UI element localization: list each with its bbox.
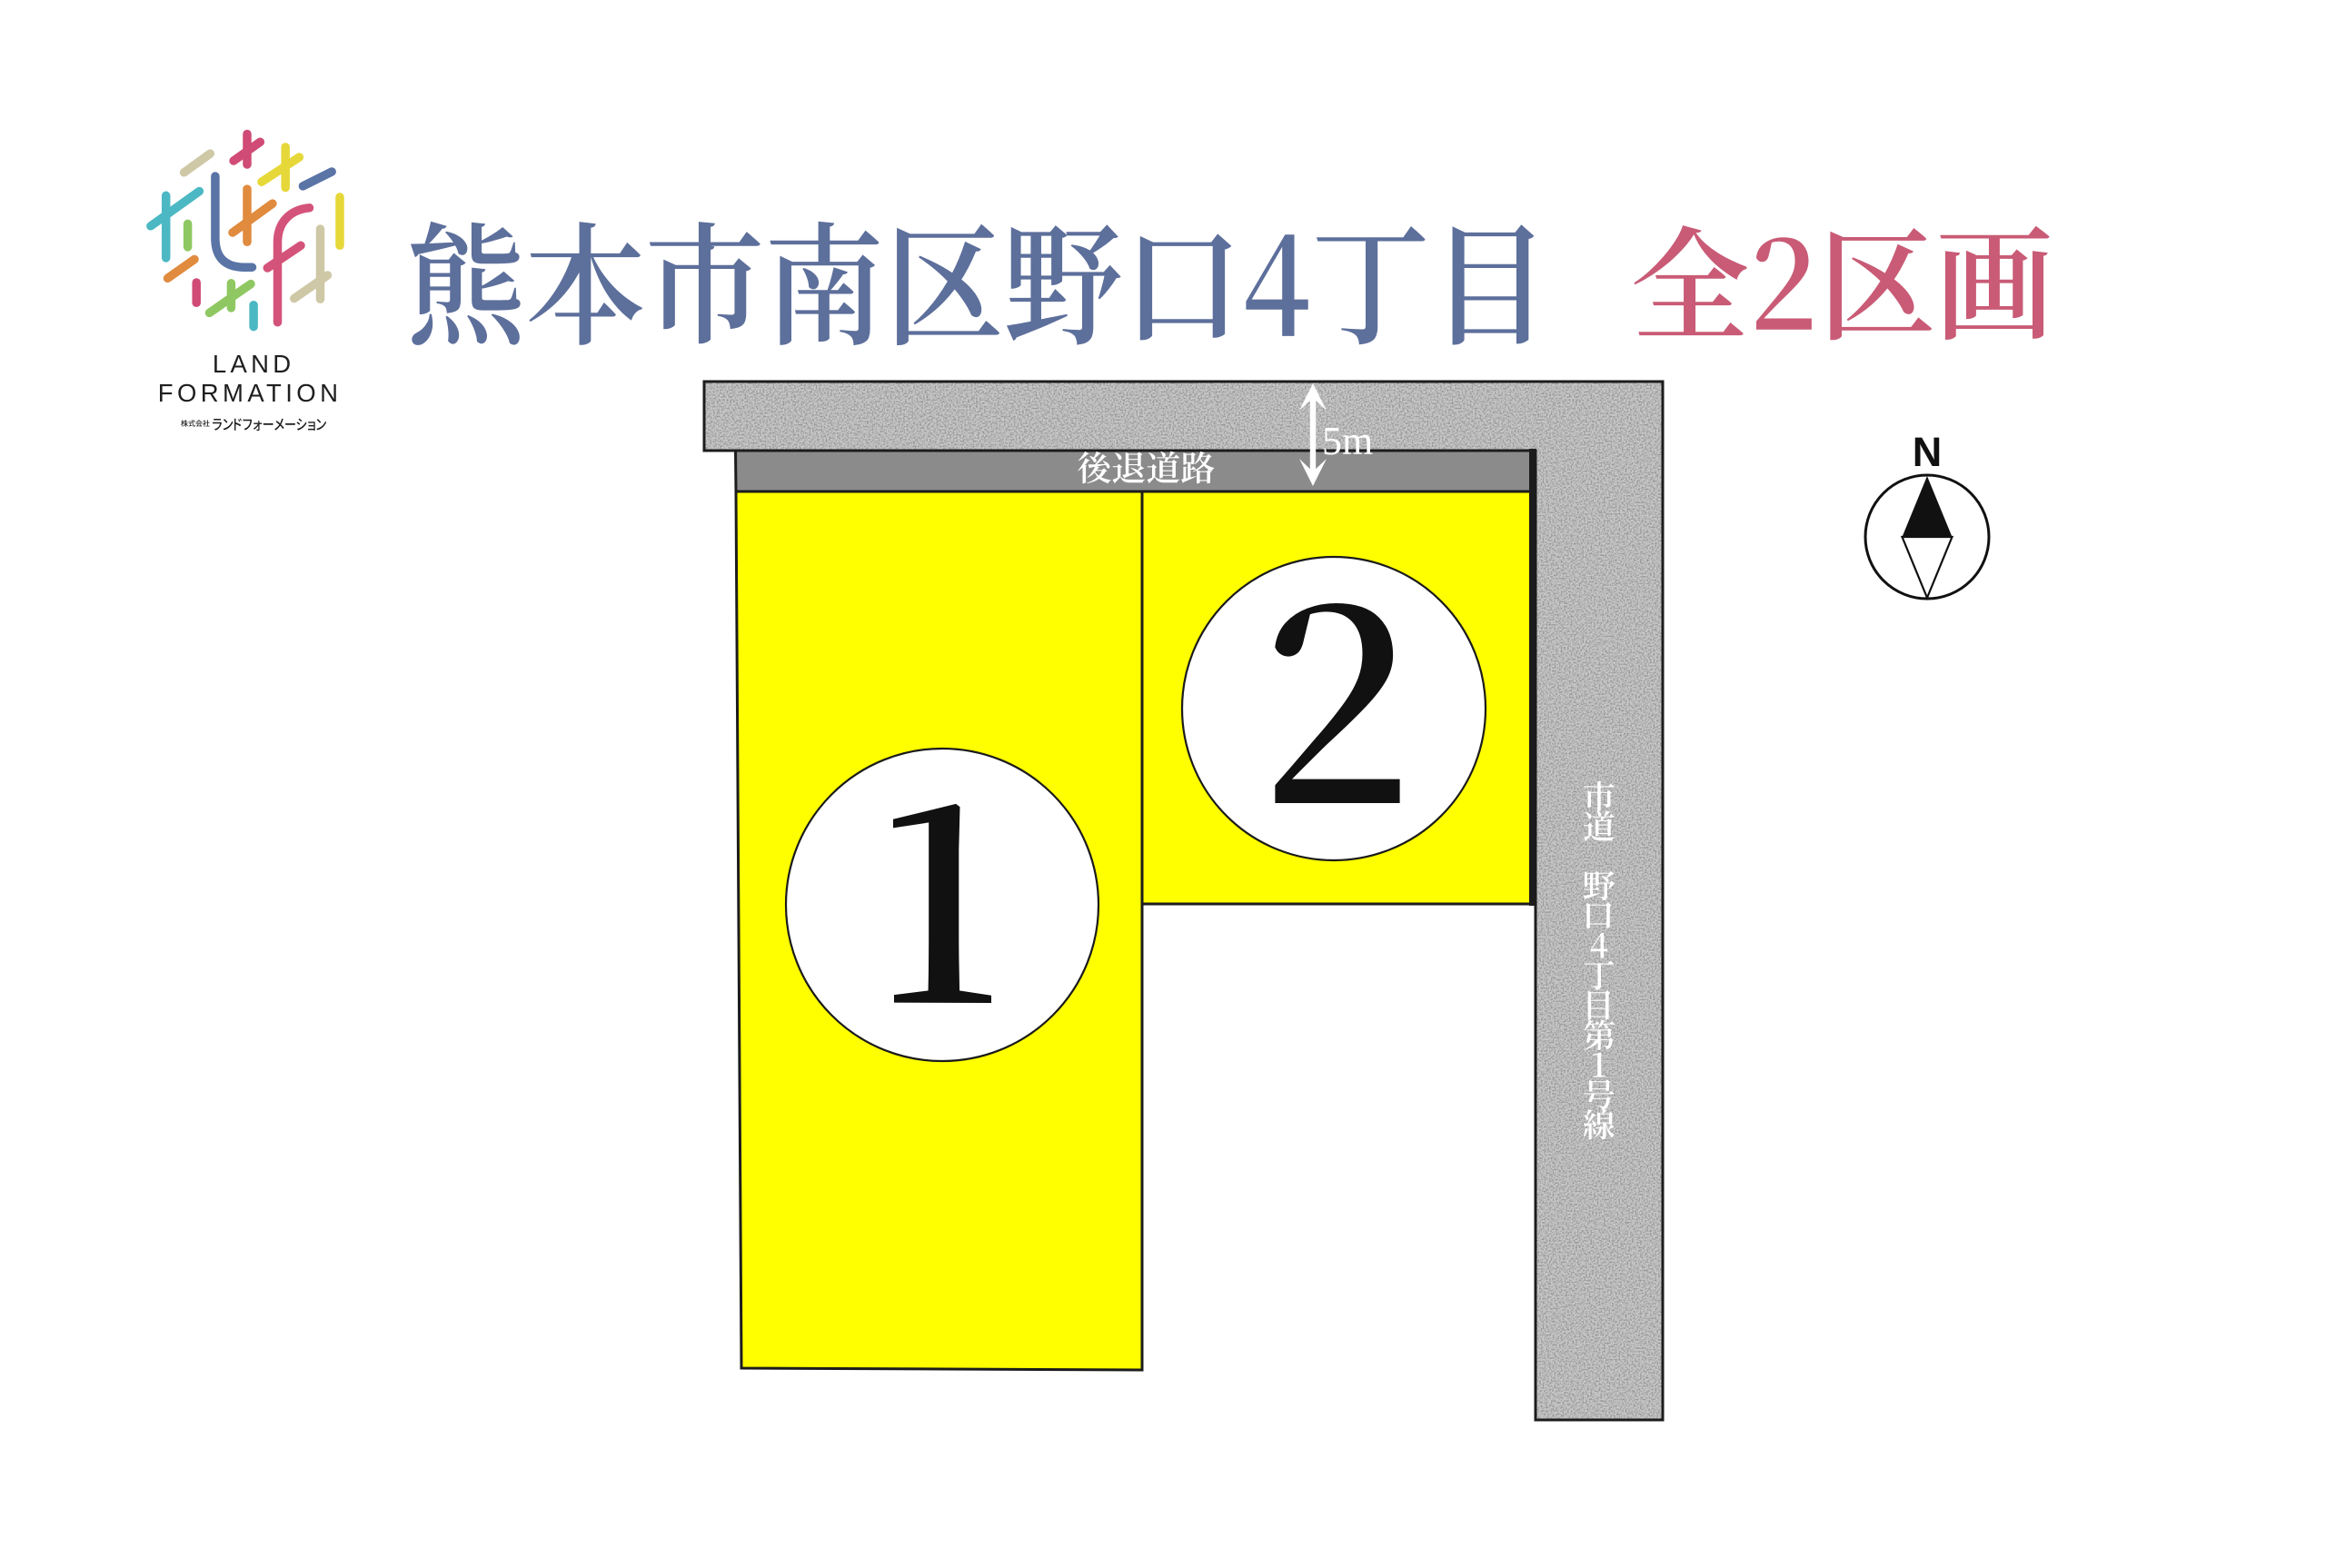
svg-text:N: N	[1913, 429, 1943, 475]
svg-text:LAND: LAND	[213, 350, 295, 378]
svg-text:FORMATION: FORMATION	[158, 379, 343, 407]
svg-text:5m: 5m	[1322, 419, 1373, 463]
